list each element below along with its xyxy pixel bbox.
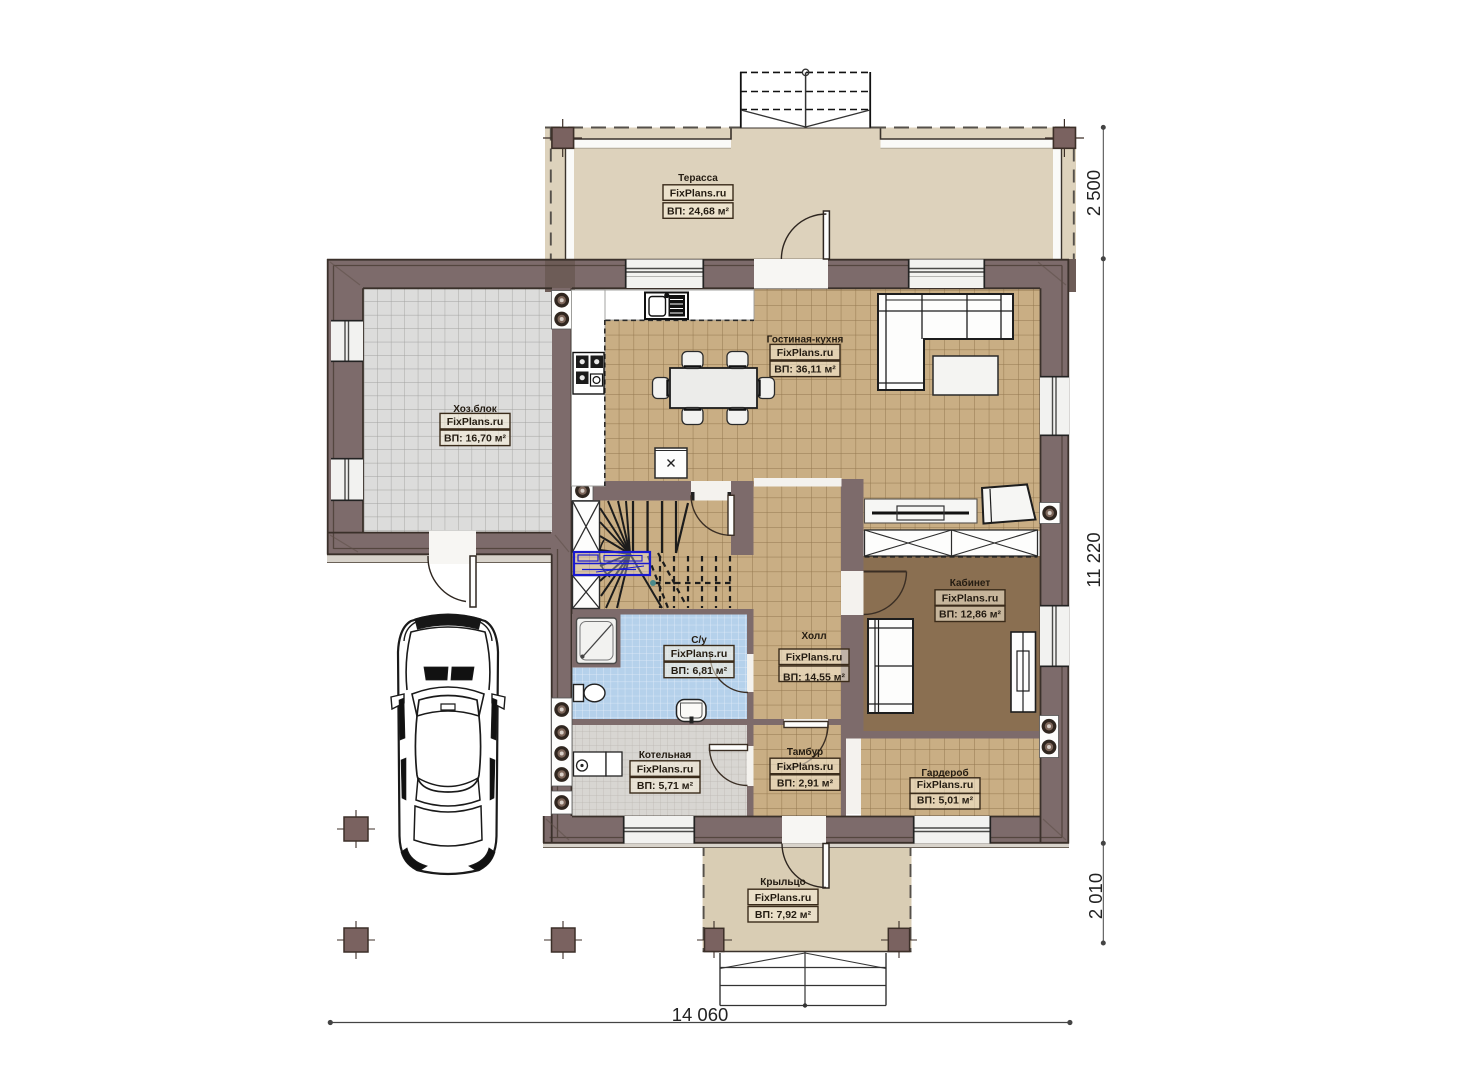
svg-text:FixPlans.ru: FixPlans.ru: [777, 347, 834, 359]
svg-text:FixPlans.ru: FixPlans.ru: [942, 592, 999, 604]
svg-text:ВП: 2,91 м²: ВП: 2,91 м²: [777, 777, 834, 789]
svg-text:Крыльцо: Крыльцо: [760, 877, 806, 888]
svg-text:ВП: 36,11 м²: ВП: 36,11 м²: [774, 364, 836, 376]
svg-text:ВП: 14,55 м²: ВП: 14,55 м²: [783, 671, 846, 683]
svg-text:ВП: 6,81 м²: ВП: 6,81 м²: [671, 665, 728, 677]
svg-text:Котельная: Котельная: [639, 750, 692, 761]
svg-text:ВП: 24,68 м²: ВП: 24,68 м²: [667, 205, 730, 217]
svg-text:FixPlans.ru: FixPlans.ru: [786, 652, 843, 664]
svg-text:С/у: С/у: [691, 635, 707, 646]
svg-text:FixPlans.ru: FixPlans.ru: [917, 779, 974, 791]
svg-text:Кабинет: Кабинет: [950, 577, 991, 589]
svg-text:ВП: 7,92 м²: ВП: 7,92 м²: [755, 909, 812, 921]
svg-text:FixPlans.ru: FixPlans.ru: [637, 763, 694, 775]
svg-text:FixPlans.ru: FixPlans.ru: [777, 761, 834, 773]
svg-text:ВП: 5,71 м²: ВП: 5,71 м²: [637, 780, 694, 792]
svg-text:11 220: 11 220: [1083, 532, 1104, 587]
svg-text:Холл: Холл: [801, 631, 826, 642]
svg-text:ВП: 16,70 м²: ВП: 16,70 м²: [444, 433, 507, 445]
svg-text:ВП: 5,01 м²: ВП: 5,01 м²: [917, 795, 974, 807]
svg-text:FixPlans.ru: FixPlans.ru: [671, 648, 728, 660]
svg-text:2 010: 2 010: [1085, 873, 1106, 919]
svg-text:FixPlans.ru: FixPlans.ru: [447, 416, 504, 428]
svg-text:ВП: 12,86 м²: ВП: 12,86 м²: [939, 609, 1002, 621]
svg-text:2 500: 2 500: [1083, 170, 1104, 216]
svg-text:Тамбур: Тамбур: [787, 746, 823, 758]
svg-text:FixPlans.ru: FixPlans.ru: [755, 892, 812, 904]
svg-text:14 060: 14 060: [672, 1004, 729, 1025]
svg-text:FixPlans.ru: FixPlans.ru: [670, 187, 727, 199]
svg-text:Терасса: Терасса: [678, 173, 718, 184]
